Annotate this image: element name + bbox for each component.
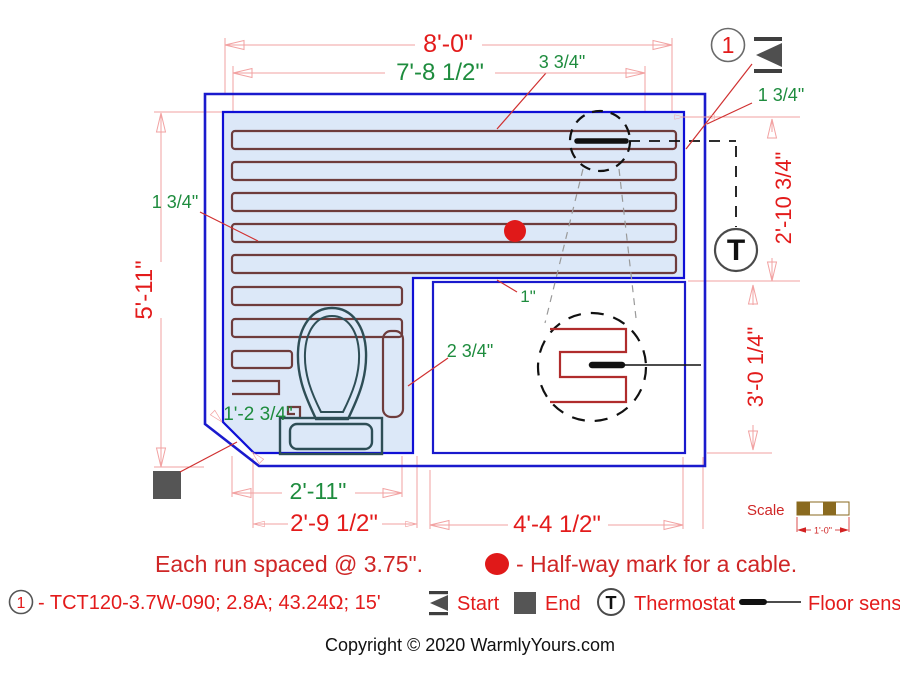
start-symbol-plan: [754, 37, 782, 73]
dim-right-lower: 3'-0 1/4": [743, 327, 768, 408]
legend-row: 1 - TCT120-3.7W-090; 2.8A; 43.24Ω; 15' S…: [10, 589, 900, 615]
legend-start-label: Start: [457, 593, 500, 615]
dim-toilet-clearance: 1'-2 3/4": [223, 404, 293, 425]
end-icon: [514, 592, 536, 614]
legend-floor-sensor-label: Floor sensor: [808, 593, 900, 615]
end-symbol-plan: [153, 471, 181, 499]
dim-gap-right: 1 3/4": [758, 85, 804, 105]
dim-top-outer: 8'-0": [423, 30, 473, 58]
floor-heating-plan: { "plan": { "dims": { "top_width_outer":…: [0, 0, 900, 675]
callout-balloon: 1: [712, 29, 745, 62]
dim-top-inner: 7'-8 1/2": [396, 59, 484, 86]
legend-cable-spec: - TCT120-3.7W-090; 2.8A; 43.24Ω; 15': [38, 592, 381, 614]
scale-block: Scale 1'-0": [747, 502, 849, 536]
dim-bottom-right: 4'-4 1/2": [513, 511, 601, 538]
callout-number: 1: [722, 32, 735, 58]
legend-callout-number: 1: [17, 595, 26, 612]
halfway-note: - Half-way mark for a cable.: [516, 551, 797, 577]
dim-right-upper: 2'-10 3/4": [771, 152, 796, 245]
legend-thermostat-label: Thermostat: [634, 593, 736, 615]
plan-drawing: T 1: [0, 0, 900, 675]
legend-thermostat-symbol: T: [606, 593, 617, 613]
thermostat-plan-symbol: T: [715, 229, 757, 271]
dim-gap-top: 3 3/4": [539, 52, 585, 72]
scale-label: Scale: [747, 502, 785, 519]
dim-bottom-inner: 2'-11": [290, 478, 347, 504]
thermostat-plan-letter: T: [727, 234, 745, 267]
dim-left-height: 5'-11": [131, 260, 158, 319]
halfway-mark-dot: [504, 220, 526, 242]
dim-bottom-outer: 2'-9 1/2": [290, 510, 378, 537]
dim-gap-left: 1 3/4": [152, 192, 198, 212]
dim-gap-last-run: 1": [520, 287, 536, 306]
halfway-legend-dot: [485, 553, 509, 575]
start-icon: [429, 591, 448, 615]
legend-end-label: End: [545, 593, 581, 615]
dim-gap-column: 2 3/4": [447, 341, 493, 361]
scale-unit: 1'-0": [814, 526, 832, 536]
copyright-text: Copyright © 2020 WarmlyYours.com: [325, 635, 615, 655]
spacing-note: Each run spaced @ 3.75".: [155, 551, 423, 577]
